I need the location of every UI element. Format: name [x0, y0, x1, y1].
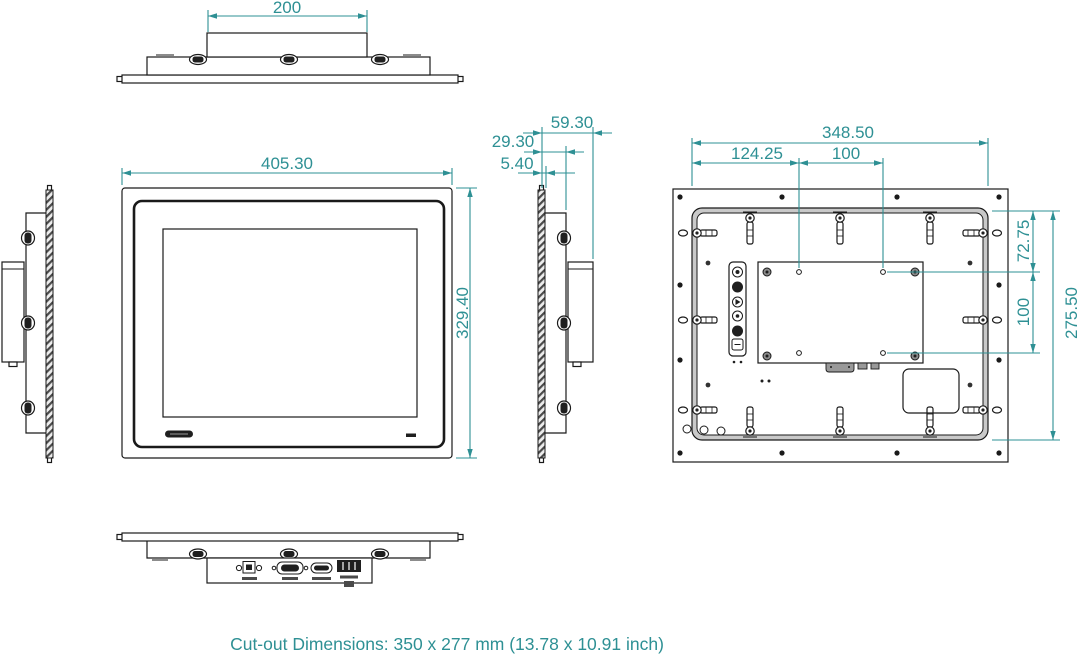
dimension-label-vesa-top-offset: 72.75	[1014, 220, 1033, 263]
dimension-label-vesa-h-pitch: 100	[832, 144, 860, 163]
down-button-dot	[736, 314, 740, 318]
rear-box-foot	[573, 362, 581, 367]
dimension-label-front-width: 405.30	[261, 154, 313, 173]
connector-icon	[858, 363, 867, 369]
arrowhead-icon	[799, 160, 808, 165]
arrowhead-icon	[467, 188, 472, 197]
rear-box-profile	[2, 262, 24, 362]
dimension-label-total-depth: 59.30	[551, 113, 594, 132]
arrowhead-icon	[1050, 211, 1055, 220]
dimension-label-vesa-v-pitch: 100	[1014, 298, 1033, 326]
top-view: 200	[117, 0, 463, 83]
dimension-label-top-mount-width: 200	[273, 0, 301, 17]
indicator-dot	[740, 361, 743, 364]
rear-box-foot	[9, 362, 17, 367]
detail-dot	[761, 380, 764, 383]
select-button-icon[interactable]	[732, 326, 743, 337]
arrowhead-icon	[1030, 272, 1035, 281]
mechanical-drawing-page: 200 405.30 329.40	[0, 0, 1080, 660]
arrowhead-icon	[208, 13, 217, 18]
right-side-view: 59.30 29.30 5.40	[492, 113, 612, 463]
arrowhead-icon	[546, 170, 555, 175]
dimension-label-bezel-thickness: 5.40	[500, 154, 533, 173]
panel-pc-dimension-drawing: 200 405.30 329.40	[0, 0, 1080, 660]
front-bezel-edge	[122, 75, 458, 83]
arrowhead-icon	[533, 149, 542, 154]
arrowhead-icon	[1050, 431, 1055, 440]
mounting-clamp-icon	[679, 316, 718, 324]
arrowhead-icon	[692, 160, 701, 165]
front-bezel-edge	[122, 533, 458, 541]
rear-cover-hump	[207, 33, 367, 57]
front-view: 405.30 329.40	[122, 154, 477, 458]
dimension-label-body-depth: 29.30	[492, 132, 535, 151]
arrowhead-icon	[979, 140, 988, 145]
screw-hole	[706, 383, 711, 388]
arrowhead-icon	[122, 170, 131, 175]
arrowhead-icon	[1030, 263, 1035, 272]
power-button-dot	[736, 270, 740, 274]
arrowhead-icon	[443, 170, 452, 175]
arrowhead-icon	[692, 140, 701, 145]
cutout-dimensions-caption: Cut-out Dimensions: 350 x 277 mm (13.78 …	[230, 634, 664, 654]
bottom-view	[117, 533, 463, 587]
arrowhead-icon	[593, 130, 602, 135]
bezel-section	[46, 190, 53, 458]
rear-box-profile	[568, 262, 593, 362]
indicator-dot	[733, 361, 736, 364]
arrowhead-icon	[1030, 211, 1035, 220]
dimension-label-rear-body-width: 348.50	[822, 123, 874, 142]
osd-button-strip	[729, 262, 746, 363]
screw-hole	[968, 383, 973, 388]
arrowhead-icon	[467, 449, 472, 458]
bezel-section	[538, 190, 545, 458]
mounting-clamp-icon	[963, 229, 1002, 237]
arrowhead-icon	[874, 160, 883, 165]
arrowhead-icon	[790, 160, 799, 165]
dimension-label-front-height: 329.40	[453, 287, 472, 339]
arrowhead-icon	[358, 13, 367, 18]
mounting-clamp-icon	[963, 406, 1002, 414]
arrowhead-icon	[533, 130, 542, 135]
clamp-screw-icon	[558, 231, 571, 415]
brightness-button-icon[interactable]	[732, 282, 743, 293]
screw-hole	[706, 261, 711, 266]
dimension-label-rear-body-height: 275.50	[1062, 287, 1080, 339]
mounting-clamp-icon	[679, 406, 718, 414]
terminal-block-icon	[337, 560, 361, 572]
left-side-view	[2, 186, 53, 463]
vesa-mount-plate	[758, 262, 923, 363]
mounting-clamp-icon	[679, 229, 718, 237]
rear-view: 348.50 124.25 100 72.75 100 275.50	[673, 123, 1080, 462]
model-mark	[406, 434, 416, 438]
clamp-screw-icon	[22, 231, 35, 415]
detail-dot	[768, 380, 771, 383]
arrowhead-icon	[533, 170, 542, 175]
dimension-label-vesa-left-offset: 124.25	[731, 144, 783, 163]
arrowhead-icon	[566, 149, 575, 154]
connector-icon	[871, 363, 879, 369]
arrowhead-icon	[1030, 344, 1035, 353]
screw-hole	[968, 261, 973, 266]
mounting-clamp-icon	[963, 316, 1002, 324]
